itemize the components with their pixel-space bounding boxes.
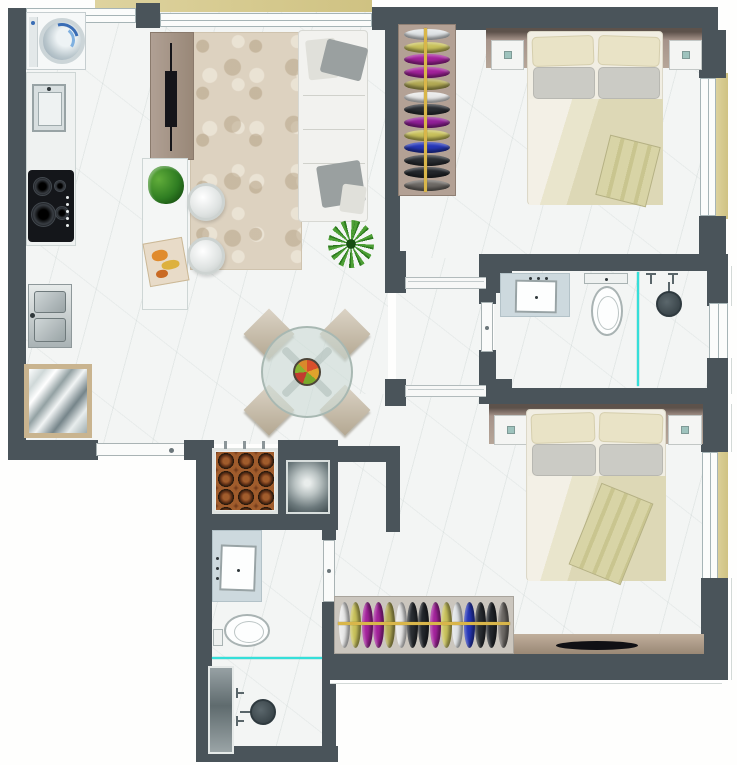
window — [702, 452, 718, 580]
garment — [350, 602, 361, 648]
grill-pipe — [243, 441, 246, 449]
wardrobe-rod — [338, 622, 510, 625]
grill-pipe — [224, 441, 227, 449]
garment — [404, 42, 450, 53]
wall — [385, 251, 406, 293]
mirror-table — [24, 364, 92, 438]
garment — [430, 602, 441, 648]
wall — [136, 3, 160, 28]
wall — [385, 379, 406, 406]
tv-panel — [150, 32, 194, 160]
sofa — [298, 30, 368, 222]
cooktop — [28, 170, 74, 242]
nightstand — [494, 415, 528, 445]
wall — [386, 446, 400, 532]
entry-door — [96, 443, 186, 456]
balcony-glass-door — [160, 13, 372, 27]
fruit-bowl — [293, 358, 321, 386]
shower-head — [656, 291, 682, 317]
toilet-button — [605, 278, 608, 281]
shower-niche — [208, 666, 234, 754]
shower-glass-divider — [637, 272, 639, 386]
garment — [373, 602, 384, 648]
shower-handle — [672, 274, 674, 284]
garment — [339, 602, 350, 648]
shower-handle — [668, 273, 678, 275]
garment — [404, 130, 450, 141]
garment — [404, 104, 450, 115]
wardrobe-rod — [424, 28, 427, 192]
garment — [404, 142, 450, 153]
wall — [479, 388, 728, 404]
garment — [404, 67, 450, 78]
wall — [196, 514, 338, 530]
garment — [452, 602, 463, 648]
nightstand — [668, 415, 702, 445]
plant — [328, 220, 374, 268]
window — [709, 303, 728, 360]
garment — [404, 180, 450, 191]
wall — [486, 379, 512, 404]
window — [700, 78, 716, 216]
garment — [464, 602, 475, 648]
barbecue-grill — [212, 448, 278, 514]
bedroom1-sliding-door — [405, 277, 487, 289]
wall — [699, 30, 726, 78]
garment — [486, 602, 497, 648]
bathroom1-toilet — [591, 286, 623, 336]
washing-machine — [26, 12, 86, 70]
nightstand — [669, 40, 702, 70]
floor-plan — [0, 0, 737, 765]
garment — [404, 79, 450, 90]
wall — [701, 404, 728, 452]
garment — [498, 602, 509, 648]
wall — [8, 440, 98, 460]
wall — [322, 514, 336, 540]
garment — [441, 602, 452, 648]
wall — [330, 654, 722, 680]
garment — [404, 155, 450, 166]
tv — [556, 641, 638, 650]
double-sink — [28, 284, 72, 348]
bathroom1-vanity — [500, 273, 570, 317]
garment — [404, 54, 450, 65]
shower-handle — [646, 273, 656, 275]
balcony-strip-bedroom1 — [715, 73, 728, 219]
wall — [701, 578, 728, 680]
cutting-board — [142, 237, 189, 287]
counter-plant — [148, 166, 184, 204]
garment — [407, 602, 418, 648]
wall — [479, 254, 728, 271]
bed1-mattress — [527, 31, 663, 205]
bedroom2-sliding-door — [405, 385, 487, 397]
nightstand — [491, 40, 524, 70]
garment — [384, 602, 395, 648]
shower-glass-divider — [212, 657, 322, 659]
garment — [362, 602, 373, 648]
bar-stool — [187, 237, 225, 275]
garment — [475, 602, 486, 648]
bathroom2-toilet — [224, 614, 270, 647]
bedroom2-wardrobe — [334, 596, 514, 654]
bar-stool — [187, 183, 225, 221]
garment — [404, 117, 450, 128]
living-rug — [190, 32, 302, 270]
wall — [707, 266, 728, 306]
garment — [404, 29, 450, 40]
bathroom1-door — [481, 302, 493, 352]
garment — [404, 92, 450, 103]
garment — [396, 602, 407, 648]
bedroom1-wardrobe — [398, 24, 456, 196]
shower-head — [250, 699, 276, 725]
toilet-tank — [213, 629, 223, 646]
garment — [404, 167, 450, 178]
garment — [418, 602, 429, 648]
shower-handle — [236, 716, 238, 726]
side-table — [286, 460, 330, 514]
grill-pipe — [262, 441, 265, 449]
shower-handle — [650, 274, 652, 284]
bathroom2-door — [323, 540, 335, 602]
kitchen-sink — [32, 84, 66, 132]
bed2-mattress — [526, 409, 666, 581]
shower-handle — [236, 688, 238, 698]
bathroom2-vanity — [212, 530, 262, 602]
